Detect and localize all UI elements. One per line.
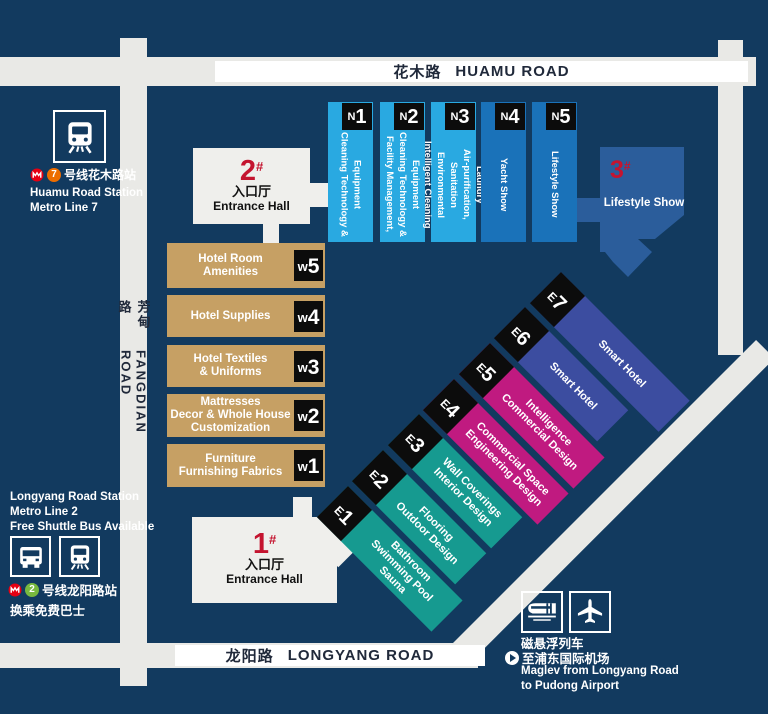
fangdian-road-label-cn: 芳甸路: [115, 300, 153, 345]
longyang-station-cn: 号线龙阳路站: [42, 580, 117, 599]
hall-n5: N5 Lifestyle Show: [532, 102, 577, 242]
metro-logo-icon: [8, 583, 22, 597]
hall-w5-code: W5: [294, 250, 323, 281]
connector-entrance2-n1: [310, 183, 330, 207]
shuttle-bus-cn: 换乘免费巴士: [10, 600, 85, 619]
hall-n1-code: N1: [342, 103, 372, 130]
huamu-road-label-en: HUAMU ROAD: [455, 63, 569, 80]
hall-w4: Hotel Supplies W4: [167, 295, 325, 337]
hall-w4-label: Hotel Supplies: [167, 310, 294, 323]
hall-w3: Hotel Textiles & Uniforms W3: [167, 345, 325, 387]
airplane-icon: [569, 591, 611, 633]
hall-n4: N4 Yacht Show: [481, 102, 526, 242]
hall-w3-code: W3: [294, 351, 323, 382]
hall-w2-code: W2: [294, 400, 323, 431]
metro-logo-icon: [30, 168, 44, 182]
hall-n2: N2 Facility Management, Cleaning Technol…: [380, 102, 425, 242]
entrance-hall-1-number: 1#: [192, 527, 337, 557]
hall-3-number: 3#: [610, 156, 631, 185]
longyang-station-line-row: 2 号线龙阳路站: [8, 580, 117, 599]
maglev-en: Maglev from Longyang Road to Pudong Airp…: [521, 664, 679, 694]
road-right-vertical: [718, 40, 743, 355]
huamu-station-cn: 号线花木路站: [64, 166, 136, 183]
huamu-road-label-cn: 花木路: [393, 61, 441, 82]
fangdian-road-label: 芳甸路 FANGDIAN ROAD: [120, 300, 147, 485]
hall-n1: N1 Cleaning Technology & Equipment: [328, 102, 373, 242]
hall-w4-code: W4: [294, 301, 323, 332]
train-icon: [53, 110, 106, 163]
hall-n5-code: N5: [546, 103, 576, 130]
hall-w2-label: Mattresses Decor & Whole House Customiza…: [167, 396, 294, 435]
hall-w5: Hotel Room Amenities W5: [167, 243, 325, 288]
hall-n3: N3 Intelligent Cleaning Environmental Sa…: [431, 102, 476, 242]
hall-w5-label: Hotel Room Amenities: [167, 253, 294, 279]
hall-n5-label: Lifestyle Show: [548, 151, 561, 218]
play-arrow-icon: [505, 651, 519, 665]
hall-w1: Furniture Furnishing Fabrics W1: [167, 444, 325, 487]
entrance-hall-2-cn: 入口厅: [193, 184, 310, 199]
hall-3-label: Lifestyle Show: [596, 197, 692, 209]
line-7-badge: 7: [47, 168, 61, 182]
expo-venue-map: 花木路 HUAMU ROAD 龙阳路 LONGYANG ROAD 芳甸路 FAN…: [0, 0, 768, 714]
entrance-hall-2-en: Entrance Hall: [193, 199, 310, 213]
connector-entrance1-up: [293, 497, 312, 519]
hall-w1-label: Furniture Furnishing Fabrics: [167, 453, 294, 479]
longyang-road-label-cn: 龙阳路: [226, 645, 274, 666]
huamu-road-label: 花木路 HUAMU ROAD: [215, 61, 748, 82]
entrance-hall-1-cn: 入口厅: [192, 557, 337, 572]
longyang-road-label-en: LONGYANG ROAD: [288, 647, 435, 664]
entrance-hall-1-en: Entrance Hall: [192, 572, 337, 586]
huamu-station-line-row: 7 号线花木路站: [30, 166, 136, 183]
hall-w2: Mattresses Decor & Whole House Customiza…: [167, 394, 325, 437]
hall-w1-code: W1: [294, 450, 323, 481]
bus-icon: [10, 536, 51, 577]
entrance-hall-2: 2# 入口厅 Entrance Hall: [193, 148, 310, 224]
huamu-station-en: Huamu Road Station Metro Line 7: [30, 186, 143, 216]
longyang-station-en: Longyang Road Station Metro Line 2 Free …: [10, 490, 154, 535]
maglev-icon: [521, 591, 563, 633]
train-icon: [59, 536, 100, 577]
longyang-road-label: 龙阳路 LONGYANG ROAD: [175, 645, 485, 666]
hall-n3-code: N3: [445, 103, 475, 130]
hall-n2-code: N2: [394, 103, 424, 130]
entrance-hall-1: 1# 入口厅 Entrance Hall: [192, 517, 337, 603]
hall-w3-label: Hotel Textiles & Uniforms: [167, 353, 294, 379]
hall-n4-code: N4: [495, 103, 525, 130]
hall-n3-label: Intelligent Cleaning Environmental Sanit…: [421, 130, 486, 239]
line-2-badge: 2: [25, 583, 39, 597]
hall-n4-label: Yacht Show: [497, 158, 510, 211]
fangdian-road-label-en: FANGDIAN ROAD: [119, 350, 149, 485]
entrance-hall-2-number: 2#: [193, 154, 310, 184]
hall-n1-label: Cleaning Technology & Equipment: [338, 132, 364, 237]
hall-n2-label: Facility Management, Cleaning Technology…: [383, 132, 422, 237]
